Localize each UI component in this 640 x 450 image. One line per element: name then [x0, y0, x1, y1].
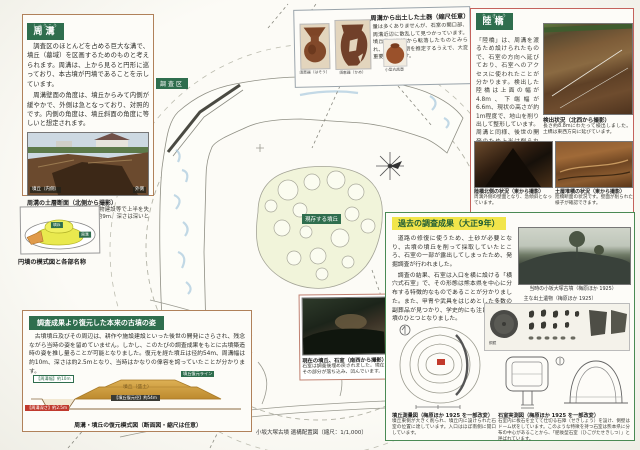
mound-model-figure: 墳丘 周溝	[20, 205, 101, 254]
moat-photo-label-inner: 墳丘（内側）	[30, 187, 61, 193]
land-bridge-photo-main	[543, 23, 633, 115]
label-restore-line: 墳丘復元ライン	[181, 371, 214, 377]
moat-paragraph-1: 調査区のほとんどを占める巨大な溝で、墳丘（墓域）を区画するためのものと考えられま…	[27, 42, 149, 89]
mound-model-caption: 円墳の模式図と各部名称	[18, 257, 86, 266]
moat-title: 周溝	[33, 28, 58, 38]
past-survey-title: 過去の調査成果（大正9年）	[392, 217, 506, 230]
poster-scan: 調査区 現存する墳丘 現在の墳丘、石室（南西から撮影） 石室は調査後埋め戻されま…	[0, 0, 640, 450]
moat-title-badge: しゅうこう 周溝	[27, 23, 64, 40]
pottery-photo-hasou	[299, 23, 330, 70]
pottery-photo-kame	[334, 19, 371, 70]
present-mound-figure: 現在の墳丘、石室（南西から撮影） 石室は調査後埋め戻されました。現在はその部分が…	[299, 294, 393, 381]
past-mound-caption: 当時の小坂大塚古墳（梅原ほか 1925）	[514, 285, 632, 292]
north-arrow-icon	[376, 152, 404, 180]
site-plan-caption: 小坂大塚古墳 遺構配置図（縮尺：1/1,000）	[256, 428, 367, 436]
model-mound-label: 墳丘	[51, 222, 63, 228]
land-bridge-photo3-caption: 土層堆積の状況（東から撮影）	[555, 188, 633, 195]
land-bridge-photo1-caption: 検出状況（北西から撮影）	[543, 116, 631, 124]
survey-area-label: 調査区	[156, 78, 188, 89]
label-mound-fill: 墳丘（盛土）	[123, 383, 152, 390]
past-survey-box: 過去の調査成果（大正9年） 道路の修復に使うため、土砂が必要となり、古墳の墳丘を…	[385, 212, 635, 441]
pottery-caption-1: 須恵器（はそう）	[297, 69, 331, 76]
past-survey-paragraph-1: 道路の修復に使うため、土砂が必要となり、古墳の墳丘を削って採取していたところ、石…	[392, 235, 512, 270]
restoration-title: 調査成果より復元した本来の古墳の姿	[29, 316, 164, 330]
land-bridge-photo-north	[474, 141, 553, 188]
moat-section-box: しゅうこう 周溝 調査区のほとんどを占める巨大な溝で、墳丘（墓域）を区画するため…	[22, 14, 154, 196]
label-moat-width: 【周溝幅】約10m	[33, 375, 74, 383]
existing-mound-label: 現存する墳丘	[302, 214, 341, 224]
past-mound-photo	[518, 227, 631, 285]
land-bridge-box: りっきょう 陸橋 「陸橋」は、周溝を渡るため設けられたもので、石室の方向へ延びて…	[470, 8, 634, 216]
restoration-caption: 周溝・墳丘の復元模式図（断面図・縮尺は任意）	[23, 420, 253, 429]
present-mound-note: 石室は調査後埋め戻されました。現在はその部分が落ち込み、凹んでいます。	[302, 364, 389, 378]
moat-paragraph-2: 周溝壁面の角度は、墳丘からみて内側が緩やかで、外側は急となっており、対照的です。…	[27, 91, 149, 129]
pottery-caption-2: 須恵器（かめ）	[333, 69, 371, 76]
mound-survey-caption: 墳丘測量図（梅原ほか 1925 を一部改変）	[392, 412, 496, 419]
pottery-title: 周溝から出土した土器（縮尺任意）	[370, 11, 468, 22]
pottery-box: 周溝から出土した土器（縮尺任意） 量は多くありませんが、石室の開口部、周溝近辺に…	[293, 6, 472, 88]
stone-chamber-figure	[498, 353, 630, 411]
model-moat-label: 周溝	[79, 232, 91, 238]
mound-model-drawing	[21, 206, 100, 253]
stone-chamber-caption: 石室実測図（梅原ほか 1925 を一部改変）	[498, 412, 630, 419]
artifacts-photo: 銅鏡	[484, 303, 630, 351]
land-bridge-title-badge: りっきょう 陸橋	[476, 13, 513, 30]
pottery-photo-pot	[383, 38, 408, 66]
land-bridge-photo3-note: 陸橋断面の状況です。壁面が削られた様子が確認できます。	[555, 195, 633, 207]
artifacts-caption: 主な出土遺物（梅原ほか 1925）	[490, 295, 630, 302]
moat-section-photo: 墳丘（内側） 外側	[27, 132, 149, 196]
restoration-box: 調査成果より復元した本来の古墳の姿 古墳墳丘及びその周辺は、耕作や施設建設といっ…	[22, 310, 252, 432]
land-bridge-photo2-caption: 陸橋北側の状況（東から撮影）	[474, 188, 552, 195]
land-bridge-title: 陸橋	[482, 18, 507, 28]
land-bridge-photo2-note: 周溝外側の壁面となり、急傾斜となっています。	[474, 195, 552, 207]
present-mound-photo	[302, 297, 390, 356]
mirror-label: 銅鏡	[489, 341, 496, 346]
label-mound-diameter: 【墳丘復元径】約54m	[111, 395, 160, 401]
land-bridge-photo-strata	[555, 141, 633, 188]
pottery-caption-3: 小型丸底壺	[377, 66, 411, 73]
stone-chamber-note: 石室内に板石を立てて仕切る石障（せきしょう）を設け、側壁はドーム状をしています。…	[498, 419, 630, 443]
land-bridge-body: 「陸橋」は、周溝を渡るため設けられたもので、石室の方向へ延びており、石室へのアク…	[476, 37, 539, 154]
moat-photo-label-outer: 外側	[133, 187, 146, 193]
restoration-body: 古墳墳丘及びその周辺は、耕作や施設建設といった後世の開発にさらされ、残念ながら当…	[29, 333, 245, 376]
label-moat-depth: 【周溝深さ】約2.5m	[25, 405, 69, 411]
land-bridge-photo1-note: 長さ約8.8mにわたって検出しました。土橋は東西方向に延びています。	[543, 124, 631, 137]
mound-survey-figure	[394, 321, 486, 411]
mound-survey-note: 墳丘東側が大きく削られ、墳丘内に設けられた石室の位置に達しています。入口はほぼ南…	[392, 419, 496, 438]
